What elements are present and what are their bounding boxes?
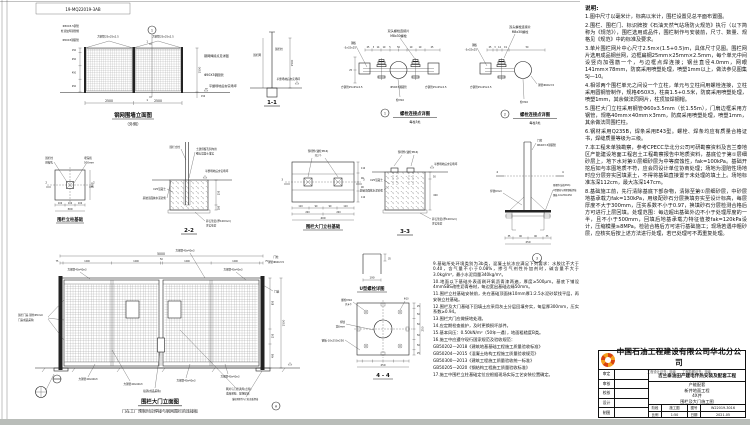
part-label: 钢管Φ60x3.5 (268, 260, 285, 264)
dim-label: 3 (494, 46, 496, 49)
part-label: 夯实垫层 (206, 224, 217, 228)
meta-cell: 图号 (688, 405, 701, 412)
dim-label: 75 (56, 260, 59, 263)
part-label: 方钢管25x25x2.5 (97, 35, 119, 39)
dim-label: 200 (336, 211, 341, 214)
dim-label: 300 (68, 207, 73, 211)
note-item: 6.钢材采用Q235B，焊条采用E43型。螺栓、焊条均应有质量合格证书，焊缝质量… (585, 129, 747, 143)
meta-cell: 2021.05 (701, 412, 745, 418)
part-label: 预埋件(锚栓M16) (553, 183, 570, 187)
meta-cell: 比例 (649, 412, 662, 418)
dim-label: 110 (343, 205, 348, 208)
note-item: 15.基本风压：0.50kN/m²（50年一遇），地面粗糙度B类。 (433, 330, 579, 335)
dim-label: 1500 (290, 59, 294, 66)
title-block-header: 中国石油工程建设有限公司华北分公司 工程设计证书：甲级 工程勘察证书：甲级 (599, 351, 745, 370)
meta-cell: W22019-3016 (701, 405, 745, 412)
panel-gate-post-detail (496, 142, 564, 244)
part-label: 网片与门框满焊(点焊) (226, 387, 251, 391)
part-label: 围栏立柱 (170, 145, 181, 149)
dim-label: 5000 (157, 252, 165, 256)
dim-label: 110 (298, 205, 303, 208)
ground-label: 平整场地后夯实场坪 (209, 83, 237, 88)
part-label: 共2个 (315, 154, 322, 158)
dim-label: 35 (546, 235, 549, 238)
dim-label: 50 (433, 176, 436, 179)
ground-label: 平整场地后夯实场坪 (277, 77, 301, 81)
panel-section-1-1 (250, 32, 302, 97)
part-label: 围栏柱 (45, 156, 53, 160)
signature-label: 校核 (599, 389, 615, 398)
meta-cell: 施工图 (662, 405, 688, 412)
meta-cell: 日期 (688, 412, 701, 418)
dim-label: 1200 (133, 260, 139, 263)
dim-label: 400 (321, 216, 326, 220)
meta-cell: 1:50 (662, 412, 688, 418)
dim-label: 100 (58, 202, 63, 205)
dim-label: 300 (90, 182, 94, 187)
part-label: 方钢管25x25x2.5 (470, 85, 492, 89)
project-name: 吉兰泰油田产建电伴热安装及配套工程 (649, 370, 745, 382)
panel-title: U型螺栓详图 (360, 285, 386, 292)
detail-badge: 2 (504, 113, 506, 117)
part-label: 基础顶面抹水泥砂浆 (143, 196, 167, 200)
part-label: 门柱 (537, 139, 543, 143)
signature-value (615, 370, 648, 379)
part-label: 方钢管40x40x3 (175, 249, 194, 253)
part-label: 夯实垫层 (432, 222, 443, 226)
dim-label: 110 (361, 167, 366, 170)
part-label: 焊缝6mm (490, 189, 502, 193)
panel-subtitle: （外侧） (125, 121, 141, 127)
dim-label: 50 (526, 46, 529, 49)
signature-label: 制图 (599, 408, 615, 418)
cut-mark-1: 1 (146, 98, 148, 102)
dim-label: 19 (419, 46, 422, 49)
dim-label: 50 (397, 46, 400, 49)
dim-label: 2500 (105, 99, 113, 103)
cut-mark-4: 4 (562, 170, 564, 174)
dim-label: 1200 (232, 260, 238, 263)
part-label: 钢板-10x250x250 (322, 339, 345, 343)
signature-label: 审核 (599, 380, 615, 389)
part-label: 方钢管25x25x2.5 (152, 35, 174, 39)
note-item: 4.相邻两个围栏单元之间设一个立柱，单元与立柱间用螺栓连接，立柱采用圆钢管制作，… (585, 83, 747, 104)
part-label: Φ50X3钢圆管 (62, 38, 79, 42)
panel-detail-2 (477, 34, 545, 99)
note-item: 9.基础所处环境类别为3b类，混凝土抗冻应满足下列要求：水胶比不大于0.40，含… (433, 261, 579, 277)
part-label: Φ50X3钢圆管 (204, 72, 224, 77)
meta-cell: 阶段 (649, 405, 662, 412)
part-label: 共4个 (345, 303, 352, 307)
part-label: 预埋件(锚栓M16) (398, 150, 419, 154)
dim-label: 2500 (154, 99, 162, 103)
part-label: 预留孔 (45, 161, 53, 165)
detail-badge: 3 (536, 257, 538, 261)
panel-title: 4 - 4 (376, 373, 390, 379)
part-label: C25混凝土 (153, 187, 166, 191)
panel-title: 围栏大门立柱基础 (306, 223, 341, 230)
signature-value (615, 389, 648, 398)
dim-label: 19 (383, 46, 386, 49)
part-label: 基础顶面抹水泥砂浆 (360, 189, 384, 193)
dim-label: 190 (370, 276, 375, 280)
dim-label: 450 (72, 72, 77, 75)
panel-title: 3-3 (400, 229, 410, 235)
part-label: 围栏柱 (275, 47, 283, 51)
notes-list-2: 9.基础所处环境类别为3b类，混凝土抗冻应满足下列要求：水胶比不大于0.40，含… (433, 261, 579, 377)
detail-subtitle: 每柱3处 (529, 120, 540, 125)
panel-title: 2-2 (184, 228, 194, 234)
note-item: 13.围栏大门应做接地处理。 (433, 316, 579, 321)
note-item: 8.基础施工前，先行清除基底下部杂物，清除至第①层细砂层，中砂层地基承载力fak… (585, 189, 747, 238)
ground-label: 平整场地后夯实场坪 (434, 162, 458, 166)
signature-row: 校核 (599, 389, 648, 399)
signature-value (615, 380, 648, 389)
panel-gate-elevation (35, 253, 300, 398)
note-item: 14.应定期检查维护，及时更换损坏部件。 (433, 323, 579, 328)
signature-row: 制图 (599, 408, 648, 418)
dim-label: 90 (519, 235, 522, 238)
meta-cells: 阶段施工图图号W22019-3016比例1:50日期2021.05 (649, 405, 745, 418)
note-item: 16.施工中应遵守现行国家规范及验收规范： (433, 337, 579, 342)
dim-label: 25 (489, 46, 492, 49)
dim-label: 3 (373, 46, 375, 49)
note-item: 3.单片围栏网片中心尺寸2.5m×(1.5+0.5)m，具体尺寸见图。围栏网片选… (585, 46, 747, 81)
dim-label: 19 (410, 46, 413, 49)
part-label: C25混凝土 (370, 178, 383, 182)
dim-label: 90 (315, 205, 318, 208)
notes-list-1: 1.图中尺寸以毫米计，标高以米计，围栏设置见总平面布置图。2.围栏、围栏门、标识… (585, 14, 747, 238)
notes-column-2: 9.基础所处环境类别为3b类，混凝土抗冻应满足下列要求：水胶比不大于0.40，含… (433, 261, 579, 379)
dim-label: 90 (329, 205, 332, 208)
part-label: 围栏网 (253, 53, 261, 57)
part-label: Φ50X3钢圆管 (390, 85, 407, 89)
dim-label: 25 (349, 69, 352, 72)
signature-row: 审定 (599, 370, 648, 380)
dim-label: 35 (388, 258, 391, 261)
note-item: GB50205—2020《钢结构工程施工质量验收标准》 (433, 365, 579, 370)
part-label: 螺栓M10 (341, 298, 352, 302)
dim-label: 100 (78, 202, 83, 205)
part-label: 方钢管40x40x3 (223, 268, 242, 272)
part-label: 方钢管40x40x3 (220, 375, 239, 379)
part-label: 围栏门扇 钢丝Φ5mm (18, 313, 44, 317)
dim-label: 250 (526, 240, 531, 244)
panel-gate-foundation-plan (284, 158, 362, 220)
part-label: 门柱 (273, 255, 279, 259)
signature-row: 设计 (599, 399, 648, 409)
dim-label: 14 (377, 46, 380, 49)
detail-badge: A (275, 405, 278, 409)
part-label: 栓M10 (520, 100, 528, 104)
dim-label: 1500 (198, 66, 202, 73)
part-label: -3x32x25 (344, 46, 357, 50)
part-label: 埋深按 (84, 156, 92, 160)
part-label: 方钢管40x40x3 (176, 379, 195, 383)
part-label: 碎石垫层(厚100mm) (206, 219, 231, 223)
detail-subtitle: 每柱3处 (409, 119, 420, 124)
petrochina-logo-icon (601, 353, 615, 367)
part-label: Φ50X3.5钢管 (63, 24, 80, 28)
panel-title: 1-1 (267, 100, 277, 106)
dim-label: 400 (272, 353, 275, 358)
drawing-title-line: 围栏及大门施工图 (680, 399, 714, 404)
notes-column-1: 说明: 1.图中尺寸以毫米计，标高以米计，围栏设置见总平面布置图。2.围栏、围栏… (585, 4, 747, 240)
dim-label: 25 (431, 46, 434, 49)
drawing-number: 19-MQ22019-3AB (65, 7, 101, 12)
signature-label: 审定 (599, 370, 615, 379)
cut-mark-4: 4 (496, 170, 498, 174)
part-label: 宽6mm (336, 325, 346, 329)
dim-label: 1200 (84, 260, 90, 263)
detail-badge: 1 (384, 112, 386, 116)
dim-label: 600 (434, 194, 439, 197)
dim-label: 150 (201, 95, 206, 98)
part-label: 钢板 (351, 41, 357, 45)
part-label: 碎石垫层(厚100mm) (432, 217, 457, 221)
dim-label: 250 (381, 363, 386, 367)
part-label: 钢管Φ60x3.5 (538, 83, 555, 87)
signature-value (615, 399, 648, 408)
cut-mark-3: 3 (281, 178, 283, 182)
dim-label: 200 (305, 211, 310, 214)
dim-label: 450 (72, 58, 77, 61)
signature-label: 设计 (599, 399, 615, 408)
dim-label: 850 (272, 300, 275, 305)
detail-title: 螺栓连接点详图 (520, 111, 551, 118)
note-item: 5.围栏大门立柱采用钢管Φ60x3.5mm（长1.55m），门扇边框采用方钢管，… (585, 106, 747, 127)
panel-ubolt-detail (363, 254, 387, 282)
part-label: 钢板 (472, 43, 478, 47)
panel-title: 围栏立柱基础 (57, 216, 83, 223)
note-item: 12.围栏及大门基础下回填土应采用灰土分层回填夯实，每层厚300mm，压实系数≥… (433, 304, 579, 315)
part-label: 方钢管40x40x3 (123, 382, 142, 386)
notes-heading: 说明: (585, 4, 747, 12)
note-item: 7.本工程未单独勘察，参考CPECC华北分公司可研勘察资料及吉兰泰地区产能建设地… (585, 145, 747, 187)
detail-title: 螺栓连接点详图 (400, 110, 431, 117)
dim-label: 5 (389, 46, 391, 49)
note-item: GB50202—2018《建筑地基基础工程施工质量验收标准》 (433, 344, 579, 349)
dim-label: 14 (498, 46, 501, 49)
detail-1-badge: 1 (151, 28, 153, 32)
panel-fence-elevation (60, 26, 230, 105)
signature-value (615, 408, 648, 418)
part-label: 土建预留孔洞内用 (196, 147, 217, 151)
note-item: 10.地面以下基础外表面刷环氧沥青漆两遍，厚度≥500μm。基底下铺设4mmSB… (433, 279, 579, 290)
part-label: 双头螺栓连接片 (509, 24, 531, 29)
note-item: 1.图中尺寸以毫米计，标高以米计，围栏设置见总平面布置图。 (585, 14, 747, 21)
part-label: 双头螺栓连接片 (388, 28, 410, 33)
part-label: Φ60X3.5钢圆管 (537, 143, 556, 147)
part-label: 焊缝 (340, 320, 346, 324)
part-label: 插销(成品采购) (143, 389, 161, 393)
part-label: 细石混凝土灌实 (196, 152, 215, 156)
part-label: 锚栓预埋件与门柱底板焊接 (232, 397, 259, 401)
panel-subtitle: 门在工厂预制时应焊接与钢网围栏的连接板 (122, 408, 198, 414)
part-label: 方钢管40x40x3 (78, 377, 97, 381)
part-label: 钢网焊接点见详图 (204, 53, 229, 58)
title-block: 中国石油工程建设有限公司华北分公司 工程设计证书：甲级 工程勘察证书：甲级 审定… (598, 350, 746, 418)
note-item: GB50300—2013《建筑工程施工质量验收统一标准》 (433, 358, 579, 363)
part-label: Φ10 (404, 298, 409, 301)
panel-title: 围栏大门立面图 (141, 398, 179, 406)
dim-label: 19 (504, 46, 507, 49)
part-label: 成品采购、现场配钻 (226, 392, 250, 396)
window-edge (0, 419, 750, 425)
dim-label: 90 (534, 235, 537, 238)
dim-label: 1200 (184, 260, 190, 263)
signature-rows: 审定 审核 校核 设计 制图 (599, 370, 649, 418)
part-label: 柱顶加焊钢管帽 (61, 29, 80, 33)
part-label: 预埋件(锚栓M16) (308, 149, 329, 153)
part-label: 栓M10 (396, 98, 404, 102)
drawing-sheet: 19-MQ22019-3AB 1 1 1 Φ50X3.5钢管 柱顶加焊钢管帽 Φ… (0, 0, 750, 425)
part-label: U型螺栓与预埋钢板焊接 (553, 188, 577, 192)
ground-label: 平整场地后夯实场坪 (205, 169, 229, 173)
part-label: 门轴 (274, 290, 280, 294)
dim-label: 25 (367, 46, 370, 49)
panel-section-4-4 (345, 300, 420, 367)
panel-title: 钢网围墙立面图 (114, 111, 152, 119)
dim-label: 1500 (282, 319, 286, 326)
dim-label: 250 (218, 190, 221, 195)
part-label: 500mm (84, 161, 94, 165)
dim-label: 100 (218, 205, 221, 210)
dim-label: 450 (72, 85, 77, 88)
dim-label: 35 (508, 235, 511, 238)
dim-label: 100 (68, 202, 73, 205)
note-item: 11.围栏立柱基础安装前，先在基础顶面抹10mm厚1:2.5水泥砂浆找平层，再安… (433, 291, 579, 302)
part-label: M8x30螺栓 (512, 29, 529, 34)
part-label: -3x32x25 (465, 48, 478, 52)
note-item: 17.施工中围栏立柱基础定位应根据现场实际工艺安装位置确定。 (433, 372, 579, 377)
dim-label: 50 (160, 258, 163, 261)
note-item: GB50204—2015《混凝土结构工程施工质量验收规范》 (433, 351, 579, 356)
company-name: 中国石油工程建设有限公司华北分公司 (615, 346, 743, 368)
signature-row: 审核 (599, 380, 648, 390)
drawing-title-block: 产能配套新井地面工程4X井围栏及大门施工图 (649, 382, 745, 405)
cut-mark-2: 2 (45, 181, 47, 185)
dim-label: 250 (272, 333, 275, 338)
part-label: 方钢管25x25x2.5 (425, 85, 447, 89)
dim-label: 110 (361, 196, 366, 199)
cut-mark-1: 1 (146, 40, 148, 44)
part-label: 方钢管40x40x3 (67, 268, 86, 272)
note-item: 2.围栏、围栏门、标识牌按《石油天然气站场防火规范》执行（以下简称为《规范》），… (585, 23, 747, 44)
part-label: 方钢管25x25x2.5 (341, 85, 363, 89)
part-label: 门扇成品采购 (18, 318, 34, 322)
dim-label: 150 (72, 49, 77, 52)
part-label: 钢板-10x250x250 (553, 193, 572, 197)
dim-label: 250 (421, 326, 425, 331)
part-label: M8x30螺栓 (390, 33, 407, 38)
